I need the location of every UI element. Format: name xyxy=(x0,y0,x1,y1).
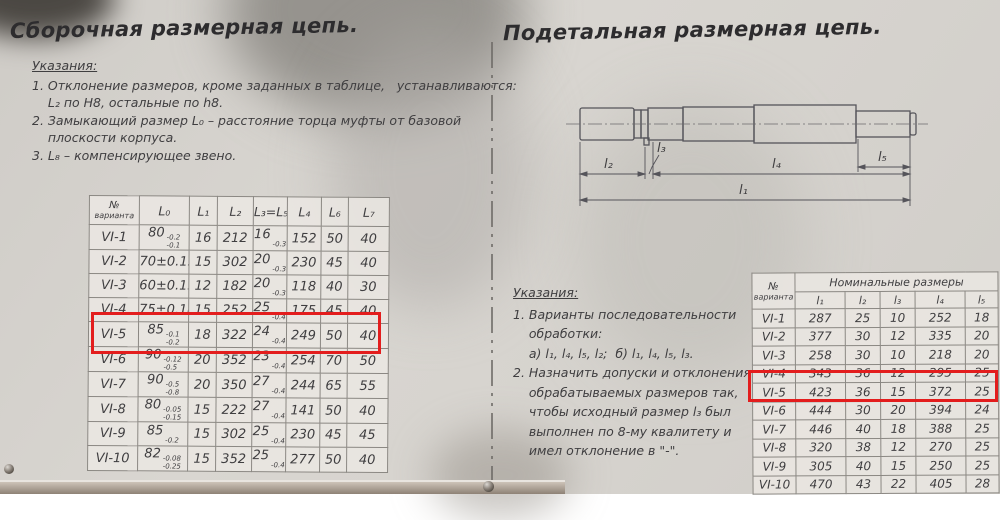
value-cell: 55 xyxy=(347,373,388,398)
value-cell: 218 xyxy=(915,345,965,364)
notes-heading: Указания: xyxy=(32,57,482,75)
table-row: VI-1082-0.08-0.251535225-0.42775040 xyxy=(88,445,388,472)
tolerance: -0.12-0.5 xyxy=(163,356,181,371)
value-cell: 18 xyxy=(965,308,998,327)
value-cell: 50 xyxy=(320,447,347,472)
value-cell: 12 xyxy=(880,327,915,346)
value-cell: 222 xyxy=(216,397,252,422)
value-cell: 12 xyxy=(189,274,217,298)
note-line: 2. Замыкающий размер L₀ – расстояние тор… xyxy=(32,112,482,130)
table-row: VI-3258301021820 xyxy=(752,345,998,365)
tolerance: -0.08-0.25 xyxy=(163,455,181,470)
tolerance: -0.4 xyxy=(271,462,285,470)
value-cell: 45 xyxy=(321,251,348,275)
value-cell: 25 xyxy=(845,308,880,327)
value-cell: 25 xyxy=(966,419,999,438)
left-notes: Указания: 1. Отклонение размеров, кроме … xyxy=(32,57,482,164)
right-page-title: Подетальная размерная цепь. xyxy=(503,15,882,46)
table-row: VI-10470432240528 xyxy=(753,474,999,494)
variant-cell: VI-2 xyxy=(752,327,795,346)
value-cell: 40 xyxy=(348,251,389,275)
shaft-drawing: l₂ l₃ l₄ l₅ l₁ xyxy=(558,82,983,217)
variant-cell: VI-3 xyxy=(89,273,139,297)
right-notes: Указания: 1. Варианты последовательности… xyxy=(513,283,763,461)
value-cell: 305 xyxy=(796,457,846,476)
column-header: L₇ xyxy=(348,197,389,226)
value-cell: 16 xyxy=(189,225,217,250)
note-line: обработки: xyxy=(513,324,763,344)
pin xyxy=(483,481,494,492)
value-cell: 25-0.4 xyxy=(252,447,286,472)
dim-label-l5: l₅ xyxy=(878,150,887,165)
variant-cell: VI-8 xyxy=(753,438,796,457)
tolerance: -0.4 xyxy=(271,438,285,446)
value-cell: 40 xyxy=(321,275,348,299)
variant-cell: VI-9 xyxy=(88,421,138,445)
value-cell: 80-0.2-0.1 xyxy=(139,225,189,250)
value-cell: 20 xyxy=(188,372,216,397)
tolerance: -0.05-0.15 xyxy=(163,406,181,421)
value-cell: 40 xyxy=(347,398,388,423)
variant-cell: VI-2 xyxy=(89,249,139,273)
tolerance: -0.2 xyxy=(165,437,179,445)
value-cell: 25-0.4 xyxy=(252,423,286,447)
left-page-title: Сборочная размерная цепь. xyxy=(10,13,359,43)
value-cell: 10 xyxy=(880,345,915,364)
note-line: 1. Отклонение размеров, кроме заданных в… xyxy=(32,77,482,95)
value-cell: 352 xyxy=(216,446,252,471)
value-cell: 20-0.3 xyxy=(253,275,287,299)
tolerance: -0.5-0.8 xyxy=(165,381,179,396)
value-cell: 12 xyxy=(881,438,916,457)
value-cell: 20-0.3 xyxy=(253,251,287,275)
value-cell: 377 xyxy=(795,327,845,346)
column-header: l₁ xyxy=(795,292,845,309)
pin xyxy=(4,464,14,474)
value-cell: 30 xyxy=(845,345,880,364)
note-line: 2. Назначить допуски и отклонения xyxy=(513,363,763,383)
table-row: VI-2377301233520 xyxy=(752,326,998,346)
value-cell: 118 xyxy=(287,275,321,299)
value-cell: 27-0.4 xyxy=(252,373,286,398)
shaft-outline xyxy=(580,105,916,145)
desk-edge xyxy=(0,480,565,494)
variant-cell: VI-3 xyxy=(752,346,795,365)
dim-label-l4: l₄ xyxy=(772,157,782,172)
value-cell: 252 xyxy=(915,308,965,327)
value-cell: 20 xyxy=(965,345,998,364)
note-line: обрабатываемых размеров так, xyxy=(513,383,763,403)
value-cell: 45 xyxy=(320,423,347,447)
value-cell: 141 xyxy=(286,398,320,423)
page-fold-line xyxy=(491,42,493,482)
value-cell: 335 xyxy=(915,327,965,346)
column-header: L₃=L₅ xyxy=(253,197,287,226)
variant-cell: VI-7 xyxy=(753,420,796,439)
value-cell: 40 xyxy=(348,226,389,251)
note-line: L₂ по H8, остальные по h8. xyxy=(32,94,482,112)
value-cell: 22 xyxy=(881,475,916,494)
variant-cell: VI-1 xyxy=(752,309,795,328)
value-cell: 405 xyxy=(916,475,966,494)
value-cell: 45 xyxy=(347,423,388,447)
value-cell: 350 xyxy=(216,372,252,397)
note-line: плоскости корпуса. xyxy=(32,129,482,147)
value-cell: 394 xyxy=(916,401,966,420)
variant-cell: VI-8 xyxy=(88,396,138,421)
note-line: 1. Варианты последовательности xyxy=(513,305,763,325)
table-row: VI-1287251025218 xyxy=(752,308,998,328)
value-cell: 277 xyxy=(286,447,320,472)
value-cell: 38 xyxy=(846,438,881,457)
value-cell: 20 xyxy=(881,401,916,420)
value-cell: 152 xyxy=(287,226,321,251)
value-cell: 16-0.3 xyxy=(253,226,287,251)
value-cell: 15 xyxy=(188,446,216,471)
value-cell: 90-0.5-0.8 xyxy=(138,372,188,397)
column-header: L₁ xyxy=(189,196,217,225)
value-cell: 270 xyxy=(916,438,966,457)
column-header: L₄ xyxy=(287,197,321,226)
note-line: имел отклонение в "-". xyxy=(513,441,763,461)
value-cell: 287 xyxy=(795,309,845,328)
table-row: VI-9305401525025 xyxy=(753,456,999,476)
value-cell: 15 xyxy=(188,397,216,422)
value-cell: 80-0.05-0.15 xyxy=(138,397,188,422)
value-cell: 388 xyxy=(916,419,966,438)
tolerance: -0.3 xyxy=(273,241,287,249)
variant-column-header: № варианта xyxy=(752,273,795,309)
value-cell: 302 xyxy=(217,250,253,274)
column-header: l₃ xyxy=(880,291,915,308)
photographed-document: Сборочная размерная цепь. Указания: 1. О… xyxy=(0,0,1000,494)
value-cell: 15 xyxy=(188,422,216,446)
dim-label-l2: l₂ xyxy=(604,157,613,172)
column-header: l₅ xyxy=(965,291,998,308)
value-cell: 60±0.15 xyxy=(139,274,189,298)
variant-cell: VI-9 xyxy=(753,457,796,476)
variant-cell: VI-7 xyxy=(88,371,138,396)
note-line: а) l₁, l₄, l₅, l₂; б) l₁, l₄, l₅, l₃. xyxy=(513,344,763,364)
value-cell: 30 xyxy=(846,401,881,420)
note-line: чтобы исходный размер l₃ был xyxy=(513,402,763,422)
value-cell: 244 xyxy=(286,373,320,398)
value-cell: 10 xyxy=(880,308,915,327)
table-row: VI-180-0.2-0.11621216-0.31525040 xyxy=(89,224,389,251)
value-cell: 30 xyxy=(845,327,880,346)
value-cell: 444 xyxy=(796,401,846,420)
table-row: VI-790-0.5-0.82035027-0.42446555 xyxy=(88,371,388,398)
highlight-box-left xyxy=(91,312,381,354)
note-line: выполнен по 8-му квалитету и xyxy=(513,422,763,442)
value-cell: 50 xyxy=(321,226,348,251)
value-cell: 230 xyxy=(286,423,320,447)
tolerance: -0.4 xyxy=(272,388,286,396)
value-cell: 25 xyxy=(966,456,999,475)
table-row: VI-270±0.151530220-0.32304540 xyxy=(89,249,389,275)
value-cell: 27-0.4 xyxy=(252,398,286,423)
value-cell: 230 xyxy=(287,251,321,275)
table-row: VI-6444302039424 xyxy=(753,400,999,420)
value-cell: 15 xyxy=(881,456,916,475)
value-cell: 65 xyxy=(320,373,347,398)
dim-label-l3: l₃ xyxy=(657,141,666,156)
value-cell: 470 xyxy=(796,475,846,494)
table-header-row: № варианта Номинальные размеры xyxy=(752,272,998,292)
variant-cell: VI-10 xyxy=(88,445,138,470)
value-cell: 250 xyxy=(916,456,966,475)
column-header: L₆ xyxy=(321,197,348,226)
group-header: Номинальные размеры xyxy=(795,272,998,292)
table-row: VI-985-0.21530225-0.42304545 xyxy=(88,421,388,447)
value-cell: 182 xyxy=(217,274,253,298)
table-row: VI-880-0.05-0.151522227-0.41415040 xyxy=(88,396,388,423)
value-cell: 24 xyxy=(966,400,999,419)
value-cell: 20 xyxy=(965,326,998,345)
value-cell: 302 xyxy=(216,422,252,446)
notes-heading: Указания: xyxy=(513,283,763,303)
highlight-box-right xyxy=(748,370,998,402)
value-cell: 85-0.2 xyxy=(138,422,188,446)
dim-label-l1: l₁ xyxy=(739,183,748,198)
value-cell: 15 xyxy=(189,250,217,274)
value-cell: 258 xyxy=(795,346,845,365)
column-header: l₂ xyxy=(845,291,880,308)
value-cell: 320 xyxy=(796,438,846,457)
value-cell: 212 xyxy=(217,225,253,250)
variant-column-header: № варианта xyxy=(89,195,139,224)
table-row: VI-7446401838825 xyxy=(753,419,999,439)
tolerance: -0.2-0.1 xyxy=(167,234,181,249)
variant-cell: VI-1 xyxy=(89,224,139,249)
note-line: 3. L₈ – компенсирующее звено. xyxy=(32,147,482,165)
variant-cell: VI-10 xyxy=(753,475,796,494)
value-cell: 25 xyxy=(966,437,999,456)
tolerance: -0.4 xyxy=(272,363,286,371)
table-row: VI-8320381227025 xyxy=(753,437,999,457)
variant-cell: VI-6 xyxy=(753,401,796,420)
tolerance: -0.3 xyxy=(272,266,286,274)
column-header: L₂ xyxy=(217,196,253,225)
value-cell: 40 xyxy=(846,419,881,438)
value-cell: 446 xyxy=(796,420,846,439)
value-cell: 40 xyxy=(846,456,881,475)
value-cell: 70±0.15 xyxy=(139,250,189,274)
value-cell: 18 xyxy=(881,419,916,438)
tolerance: -0.3 xyxy=(272,290,286,298)
table-row: VI-360±0.151218220-0.31184030 xyxy=(89,273,389,299)
value-cell: 28 xyxy=(966,474,999,493)
value-cell: 82-0.08-0.25 xyxy=(138,446,188,471)
table-header-row: № варианта L₀L₁L₂L₃=L₅L₄L₆L₇ xyxy=(89,195,389,226)
value-cell: 40 xyxy=(347,447,388,472)
value-cell: 43 xyxy=(846,475,881,494)
tolerance: -0.4 xyxy=(271,413,285,421)
column-header: L₀ xyxy=(139,196,189,225)
value-cell: 30 xyxy=(348,275,389,299)
value-cell: 50 xyxy=(320,398,347,423)
column-header: l₄ xyxy=(915,291,965,308)
